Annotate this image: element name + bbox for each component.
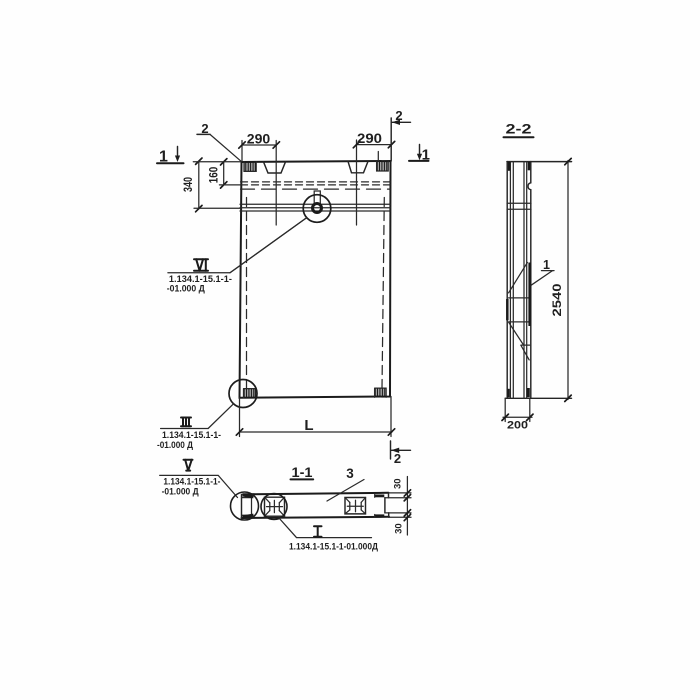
svg-text:2-2: 2-2 (506, 122, 532, 137)
svg-text:-01.000 Д: -01.000 Д (167, 283, 205, 294)
svg-text:1-1: 1-1 (292, 465, 314, 480)
svg-text:2540: 2540 (552, 284, 564, 317)
svg-text:1: 1 (543, 258, 550, 272)
svg-text:2: 2 (395, 108, 402, 123)
svg-text:290: 290 (357, 131, 382, 146)
svg-text:1: 1 (422, 147, 430, 164)
svg-text:30: 30 (393, 523, 404, 534)
svg-text:-01.000 Д: -01.000 Д (162, 487, 199, 498)
svg-text:L: L (304, 417, 313, 434)
svg-text:30: 30 (393, 478, 404, 489)
svg-text:2: 2 (394, 451, 401, 466)
svg-text:200: 200 (507, 420, 528, 432)
svg-text:1: 1 (159, 149, 168, 166)
svg-text:340: 340 (183, 177, 195, 192)
svg-text:-01.000 Д: -01.000 Д (157, 440, 193, 451)
svg-text:160: 160 (208, 167, 220, 184)
svg-text:1.134.1-15.1-1-01.000Д: 1.134.1-15.1-1-01.000Д (289, 542, 378, 553)
svg-text:3: 3 (346, 466, 354, 481)
svg-text:290: 290 (247, 132, 271, 147)
